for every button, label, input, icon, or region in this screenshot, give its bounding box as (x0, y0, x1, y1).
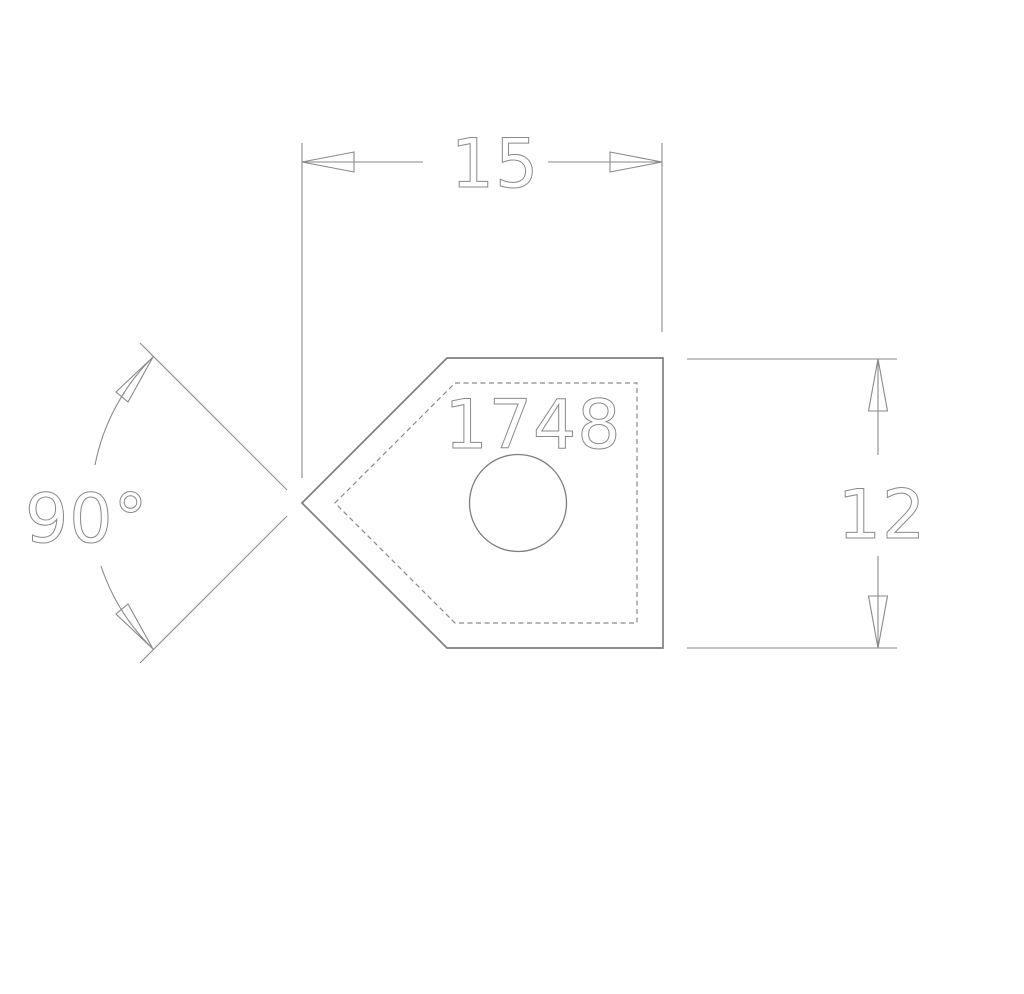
height-dimension-label: 12 (838, 476, 927, 555)
height-dimension: 12 (687, 359, 926, 648)
angle-line-lower (140, 516, 287, 663)
angle-dimension-label: 90° (25, 480, 149, 559)
drawing-canvas: 1748 15 12 (0, 0, 1024, 994)
angle-arrow-top-icon (116, 357, 153, 402)
part-view: 1748 (302, 358, 663, 648)
width-dimension-label: 15 (451, 125, 540, 204)
angle-arc-lower (101, 566, 153, 649)
part-number-label: 1748 (444, 386, 621, 465)
part-hole-circle (470, 455, 567, 552)
angle-line-upper (140, 343, 287, 490)
angle-dimension: 90° (25, 343, 287, 663)
technical-drawing: 1748 15 12 (0, 0, 1024, 994)
